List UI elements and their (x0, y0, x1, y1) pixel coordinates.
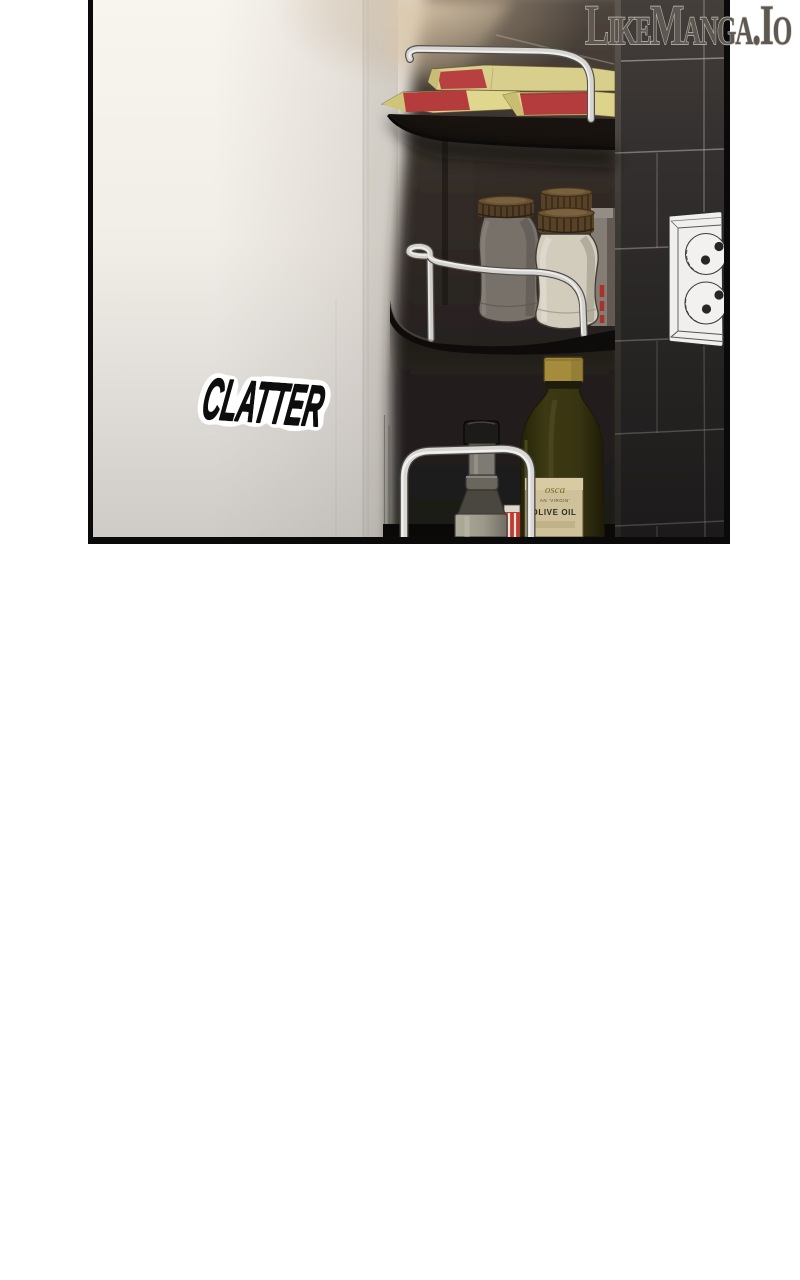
svg-text:AN 'VIRGIN': AN 'VIRGIN' (540, 498, 570, 503)
svg-text:OLIVE OIL: OLIVE OIL (532, 508, 577, 517)
svg-text:CLATTER: CLATTER (198, 367, 329, 440)
svg-text:LikeManga.Io: LikeManga.Io (585, 0, 792, 56)
svg-text:osca: osca (545, 484, 566, 496)
